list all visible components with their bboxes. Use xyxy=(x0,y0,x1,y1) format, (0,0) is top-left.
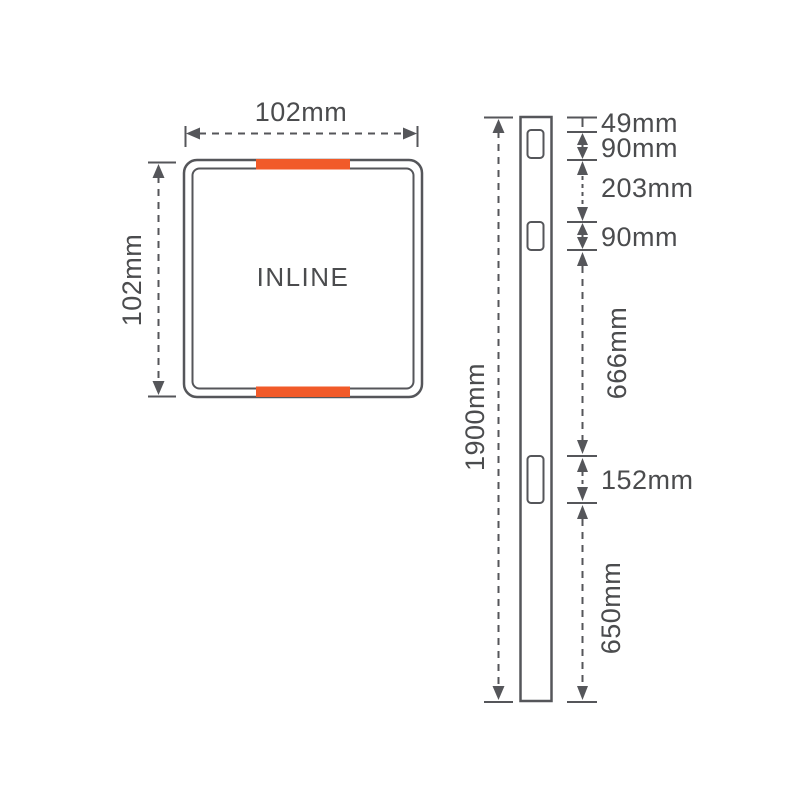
arrow-up-icon xyxy=(577,223,588,235)
arrow-down-icon xyxy=(577,487,588,501)
rail-highlight-top xyxy=(256,159,350,170)
arrow-down-icon xyxy=(577,207,588,221)
arrow-up-icon xyxy=(577,133,588,145)
front-width-dimension: 102mm xyxy=(186,97,418,147)
dim-label-650mm: 650mm xyxy=(596,562,626,655)
arrow-up-icon xyxy=(153,164,165,178)
total-height-dim-label: 1900mm xyxy=(460,363,490,471)
front-height-dim-label: 102mm xyxy=(117,234,147,327)
arrow-down-icon xyxy=(493,686,505,700)
arrow-down-icon xyxy=(577,237,588,249)
arrow-left-icon xyxy=(186,128,200,140)
dim-label-666mm: 666mm xyxy=(602,307,632,400)
front-width-dim-label: 102mm xyxy=(255,97,348,127)
arrow-down-icon xyxy=(577,440,588,454)
post-outline xyxy=(521,117,552,701)
arrow-up-icon xyxy=(577,505,588,519)
arrow-down-icon xyxy=(577,147,588,159)
dim-label-90mm-top: 90mm xyxy=(601,133,678,163)
slot-1 xyxy=(528,130,544,158)
rail-highlight-bottom xyxy=(256,387,350,398)
arrow-right-icon xyxy=(403,128,417,140)
front-height-dimension: 102mm xyxy=(117,163,176,397)
dim-label-152mm: 152mm xyxy=(601,465,694,495)
technical-drawing-page: 102mm 102mm INLINE 1900mm xyxy=(0,0,800,800)
segment-dimension-chain: 49mm 90mm 203mm 90mm 666mm 152mm 650mm xyxy=(567,108,694,702)
total-height-dimension: 1900mm xyxy=(460,118,513,703)
front-view: 102mm 102mm INLINE xyxy=(117,97,422,397)
slot-2 xyxy=(528,222,544,250)
post-body xyxy=(521,117,552,701)
side-view: 1900mm xyxy=(460,108,694,702)
dim-label-90mm-mid: 90mm xyxy=(601,222,678,252)
technical-drawing: 102mm 102mm INLINE 1900mm xyxy=(0,0,800,800)
arrow-up-icon xyxy=(577,458,588,472)
tube-profile: INLINE xyxy=(184,159,422,397)
dim-label-203mm: 203mm xyxy=(601,173,694,203)
arrow-up-icon xyxy=(493,119,505,133)
arrow-down-icon xyxy=(153,381,165,395)
arrow-up-icon xyxy=(577,161,588,175)
slot-3 xyxy=(528,456,544,503)
arrow-up-icon xyxy=(577,252,588,266)
arrow-down-icon xyxy=(577,686,588,700)
product-name-label: INLINE xyxy=(257,262,350,292)
